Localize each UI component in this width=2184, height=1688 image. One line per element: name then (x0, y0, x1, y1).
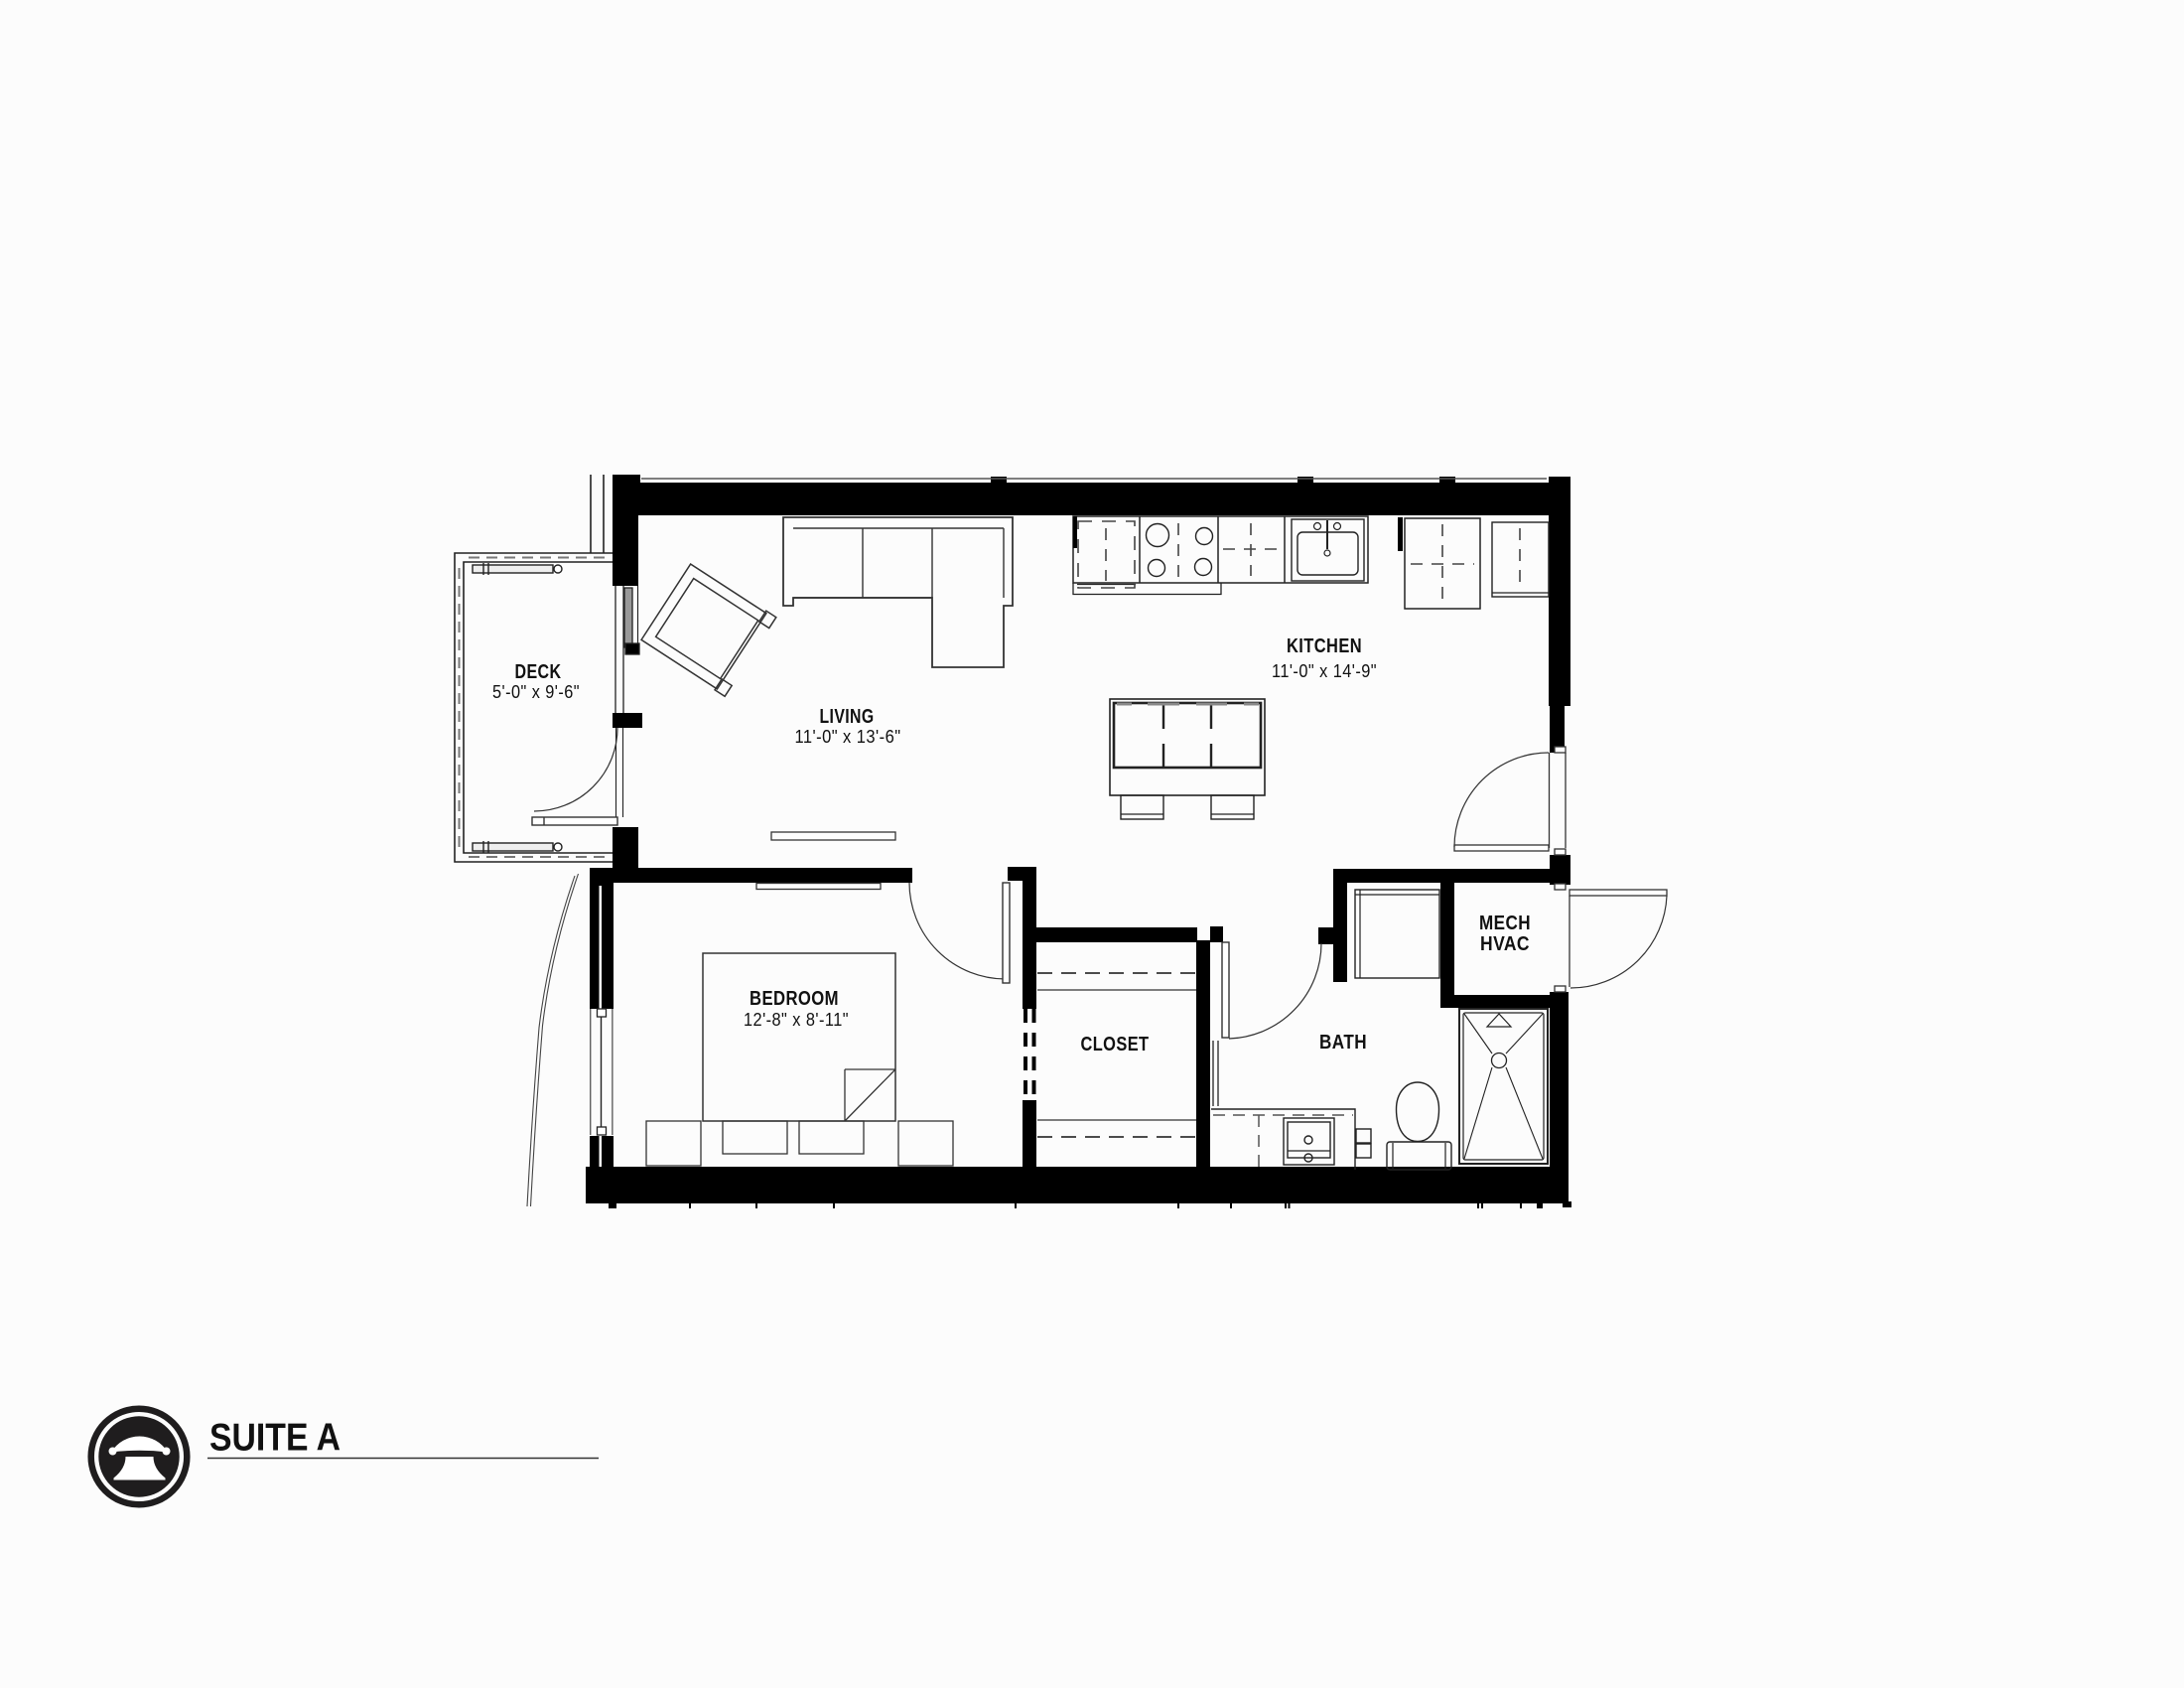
svg-text:BATH: BATH (1319, 1032, 1367, 1054)
svg-text:LIVING: LIVING (820, 706, 875, 728)
svg-text:11'-0" x 14'-9": 11'-0" x 14'-9" (1272, 661, 1377, 681)
svg-text:MECH: MECH (1479, 913, 1531, 934)
svg-text:SUITE A: SUITE A (209, 1417, 341, 1460)
svg-text:BEDROOM: BEDROOM (750, 988, 839, 1010)
svg-text:CLOSET: CLOSET (1081, 1034, 1150, 1055)
svg-text:DECK: DECK (515, 661, 562, 683)
svg-text:5'-0" x 9'-6": 5'-0" x 9'-6" (492, 682, 580, 702)
svg-text:11'-0" x 13'-6": 11'-0" x 13'-6" (795, 727, 901, 747)
svg-text:HVAC: HVAC (1480, 933, 1530, 955)
svg-text:KITCHEN: KITCHEN (1287, 635, 1362, 657)
svg-text:12'-8" x 8'-11": 12'-8" x 8'-11" (744, 1010, 849, 1030)
